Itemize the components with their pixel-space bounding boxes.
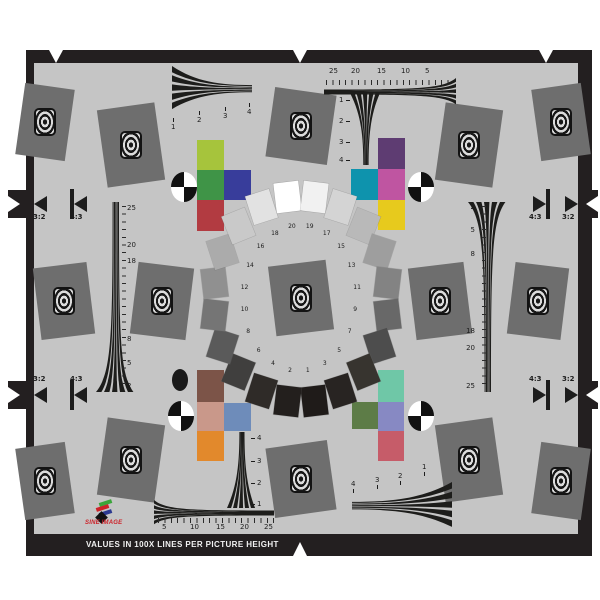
aspect-4-3-flag-right-0 [533,196,546,212]
registration-circle-icon-3 [408,401,434,431]
wedge-bottom-right-value-2: 2 [398,473,402,480]
color-patch-magenta [378,169,405,200]
color-patch-yellow-green [197,140,224,170]
frame-notch-right-0 [586,196,598,212]
wedge-bottom-left-tick-0 [251,438,255,439]
bottom-ruler-value-4: 25 [264,524,273,531]
wedge-bottom-right-tick-1 [377,485,378,489]
wedge-top-right-value-3: 4 [339,157,343,164]
focus-star-icon-14 [550,467,572,495]
gray-step-number-15: 15 [337,244,345,250]
wedge-bottom-right-value-1: 3 [375,477,379,484]
focus-star-icon-2 [290,112,312,140]
focus-star-icon-13 [458,446,480,474]
focus-star-icon-8 [429,287,451,315]
wedge-top-left-value-1: 2 [197,117,201,124]
gray-step-number-19: 19 [306,224,314,230]
left-ruler-value-2: 18 [127,258,136,265]
left-ruler-value-4: 5 [127,360,131,367]
focus-star-icon-0 [34,108,56,136]
wedge-bottom-left-value-3: 1 [257,501,261,508]
aspect-4-3-flag-left-1 [74,387,87,403]
gray-step-number-4: 4 [271,361,275,367]
right-ruler-value-3: 18 [459,328,475,335]
wedge-bottom-left-value-2: 2 [257,480,261,487]
focus-star-icon-11 [120,446,142,474]
wedge-bottom-left [227,432,257,508]
black-dot-icon [172,369,188,391]
top-ruler-value-0: 25 [329,68,338,75]
wedge-top-right-tick-0 [346,100,350,101]
wedge-bottom-right-value-3: 1 [422,464,426,471]
aspect-4-3-label-left-1: 4:3 [70,376,83,383]
aspect-4-3-label-left-0: 4:3 [70,214,83,221]
gray-step-number-1: 1 [306,368,310,374]
focus-star-icon-1 [120,131,142,159]
color-patch-lavender [378,402,404,431]
right-ruler-value-2: 8 [459,251,475,258]
gray-step-number-5: 5 [337,348,341,354]
top-ruler-value-2: 15 [377,68,386,75]
aspect-4-3-flag-left-0 [74,196,87,212]
aspect-3-2-label-right-0: 3:2 [562,214,575,221]
aspect-4-3-pole-right-0 [546,189,550,219]
wedge-bottom-left-value-0: 4 [257,435,261,442]
top-ruler-value-1: 20 [351,68,360,75]
wedge-bottom-right-tick-3 [424,472,425,476]
aspect-4-3-flag-right-1 [533,387,546,403]
gray-step-number-3: 3 [323,361,327,367]
aspect-3-2-label-right-1: 3:2 [562,376,575,383]
gray-step-20 [273,181,301,214]
frame-bottom-bar: VALUES IN 100X LINES PER PICTURE HEIGHT [26,534,592,556]
frame-notch-top-2 [539,50,553,63]
wedge-bottom-left-tick-1 [251,461,255,462]
gray-step-number-13: 13 [348,263,356,269]
wedge-bottom-left-tick-3 [251,504,255,505]
color-patch-purple [378,138,405,169]
aspect-4-3-label-right-1: 4:3 [529,376,542,383]
bottom-ruler-value-2: 15 [216,524,225,531]
focus-star-icon-9 [527,287,549,315]
color-patch-mint [378,370,404,402]
wedge-top-left-tick-2 [225,107,226,111]
registration-circle-icon-1 [408,172,434,202]
aspect-3-2-triangle-right-1 [565,387,578,403]
registration-circle-icon-2 [168,401,194,431]
color-patch-steel-blue [224,403,251,431]
focus-star-icon-4 [550,108,572,136]
focus-star-icon-5 [53,287,75,315]
brand-name: SINE IMAGE [85,520,122,526]
left-ruler-ticks [122,206,126,390]
color-patch-yellow [378,200,405,230]
top-ruler-ticks [326,80,454,85]
gray-step-10 [200,299,228,332]
wedge-top-right-tick-3 [346,160,350,161]
aspect-4-3-pole-right-1 [546,380,550,410]
wedge-top-left-tick-0 [173,118,174,122]
wedge-top-right-value-0: 1 [339,97,343,104]
gray-step-number-9: 9 [353,307,357,313]
gray-step-number-17: 17 [323,231,331,237]
frame-notch-top-1 [293,50,307,63]
frame-notch-right-1 [586,387,598,403]
gray-step-1 [301,384,329,417]
aspect-3-2-triangle-left-1 [34,387,47,403]
frame-notch-left-0 [8,196,20,212]
gray-step-number-8: 8 [246,329,250,335]
top-ruler-value-3: 10 [401,68,410,75]
wedge-bottom-right-value-0: 4 [351,481,355,488]
resolution-test-chart: VALUES IN 100X LINES PER PICTURE HEIGHT … [0,0,600,600]
wedge-top-right-value-1: 2 [339,118,343,125]
wedge-top-left [172,66,252,112]
focus-star-icon-7 [290,284,312,312]
color-patch-red [197,200,224,231]
bottom-ruler-value-3: 20 [240,524,249,531]
gray-step-9 [374,299,402,332]
gray-step-12 [200,267,228,300]
wedge-bottom-left-value-1: 3 [257,458,261,465]
color-patch-rose [378,431,404,461]
right-ruler-value-0: 2 [459,204,475,211]
aspect-3-2-triangle-left-0 [34,196,47,212]
wedge-top-right-value-2: 3 [339,139,343,146]
top-ruler-value-4: 5 [425,68,429,75]
color-patch-orange [197,431,224,461]
right-ruler-value-4: 20 [459,345,475,352]
gray-step-11 [374,267,402,300]
registration-circle-icon-0 [171,172,197,202]
left-ruler-value-1: 20 [127,242,136,249]
wedge-top-left-tick-3 [249,103,250,107]
color-patch-olive [352,402,378,429]
color-patch-salmon [197,402,224,431]
wedge-bottom-right-tick-2 [400,481,401,485]
gray-step-2 [273,384,301,417]
wedge-top-left-value-3: 4 [247,109,251,116]
frame-top-bar [26,50,592,63]
brand-logo: SINE IMAGE [85,498,145,530]
wedge-bottom-right-tick-0 [353,489,354,493]
focus-star-icon-10 [34,467,56,495]
gray-step-number-14: 14 [246,263,254,269]
focus-star-icon-6 [151,287,173,315]
gray-step-number-18: 18 [271,231,279,237]
wedge-top-left-value-2: 3 [223,113,227,120]
aspect-3-2-label-left-0: 3:2 [33,214,46,221]
wedge-top-right [350,93,382,165]
aspect-3-2-triangle-right-0 [565,196,578,212]
frame-notch-bottom [293,542,307,556]
right-ruler-ticks [482,206,486,390]
right-ruler-value-5: 25 [459,383,475,390]
aspect-4-3-label-right-0: 4:3 [529,214,542,221]
color-patch-green [197,170,224,200]
left-ruler-value-3: 8 [127,336,131,343]
right-ruler-value-1: 5 [459,227,475,234]
wedge-top-right-tick-2 [346,142,350,143]
focus-star-icon-3 [458,131,480,159]
bottom-bar-title: VALUES IN 100X LINES PER PICTURE HEIGHT [86,540,279,549]
left-ruler-value-5: 2 [127,383,131,390]
gray-step-19 [301,181,329,214]
wedge-top-left-tick-1 [199,111,200,115]
frame-notch-top-0 [49,50,63,63]
gray-step-number-11: 11 [353,285,361,291]
wedge-top-left-value-0: 1 [171,124,175,131]
gray-step-number-7: 7 [348,329,352,335]
frame-notch-left-1 [8,387,20,403]
gray-step-number-6: 6 [257,348,261,354]
gray-step-number-16: 16 [257,244,265,250]
color-patch-brown [197,370,224,402]
wedge-bottom-left-tick-2 [251,483,255,484]
left-ruler-value-0: 25 [127,205,136,212]
bottom-ruler-value-0: 5 [162,524,166,531]
gray-step-number-12: 12 [241,285,249,291]
gray-step-number-2: 2 [288,368,292,374]
bottom-ruler-value-1: 10 [190,524,199,531]
gray-step-number-20: 20 [288,224,296,230]
wedge-bottom-right [352,482,452,530]
wedge-top-right-tick-1 [346,121,350,122]
focus-star-icon-12 [290,465,312,493]
aspect-3-2-label-left-1: 3:2 [33,376,46,383]
gray-step-number-10: 10 [241,307,249,313]
